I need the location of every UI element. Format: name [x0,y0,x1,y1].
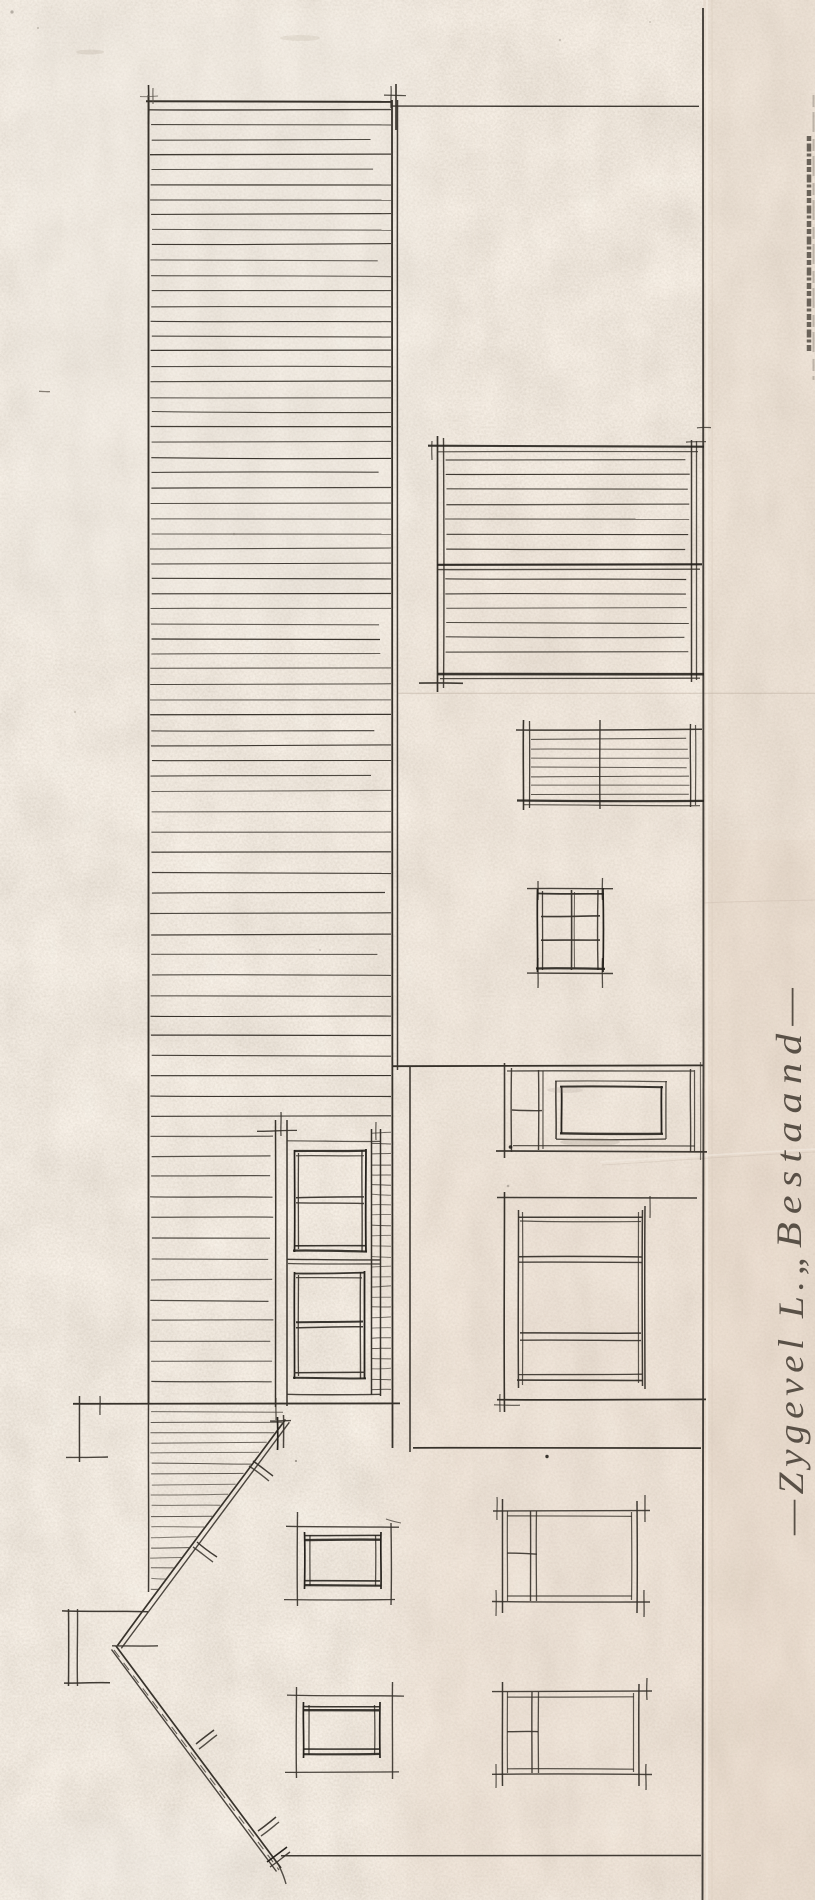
svg-text:—Zygevel L.„: —Zygevel L.„ [771,1248,811,1536]
svg-text:Bestaand—: Bestaand— [769,980,809,1248]
